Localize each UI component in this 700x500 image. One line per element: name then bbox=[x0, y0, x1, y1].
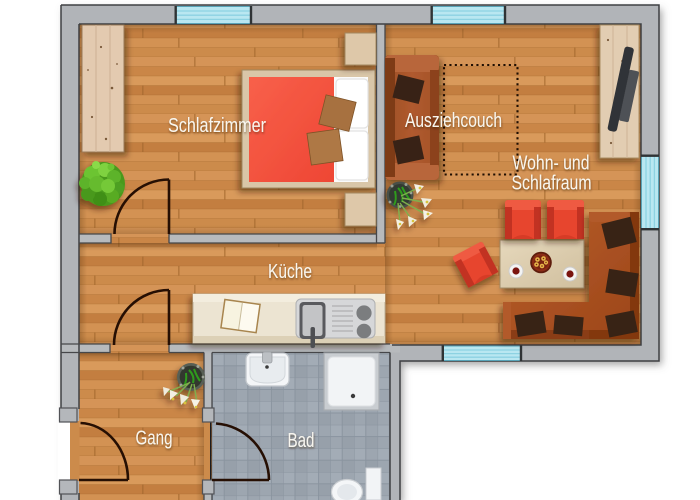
svg-text:Gang: Gang bbox=[136, 428, 173, 450]
svg-text:Wohn- und: Wohn- und bbox=[513, 153, 590, 175]
svg-text:Küche: Küche bbox=[268, 261, 312, 283]
svg-text:Schlafraum: Schlafraum bbox=[512, 173, 592, 195]
svg-text:Ausziehcouch: Ausziehcouch bbox=[405, 110, 502, 132]
svg-text:Bad: Bad bbox=[288, 430, 315, 452]
svg-text:Schlafzimmer: Schlafzimmer bbox=[168, 115, 266, 137]
